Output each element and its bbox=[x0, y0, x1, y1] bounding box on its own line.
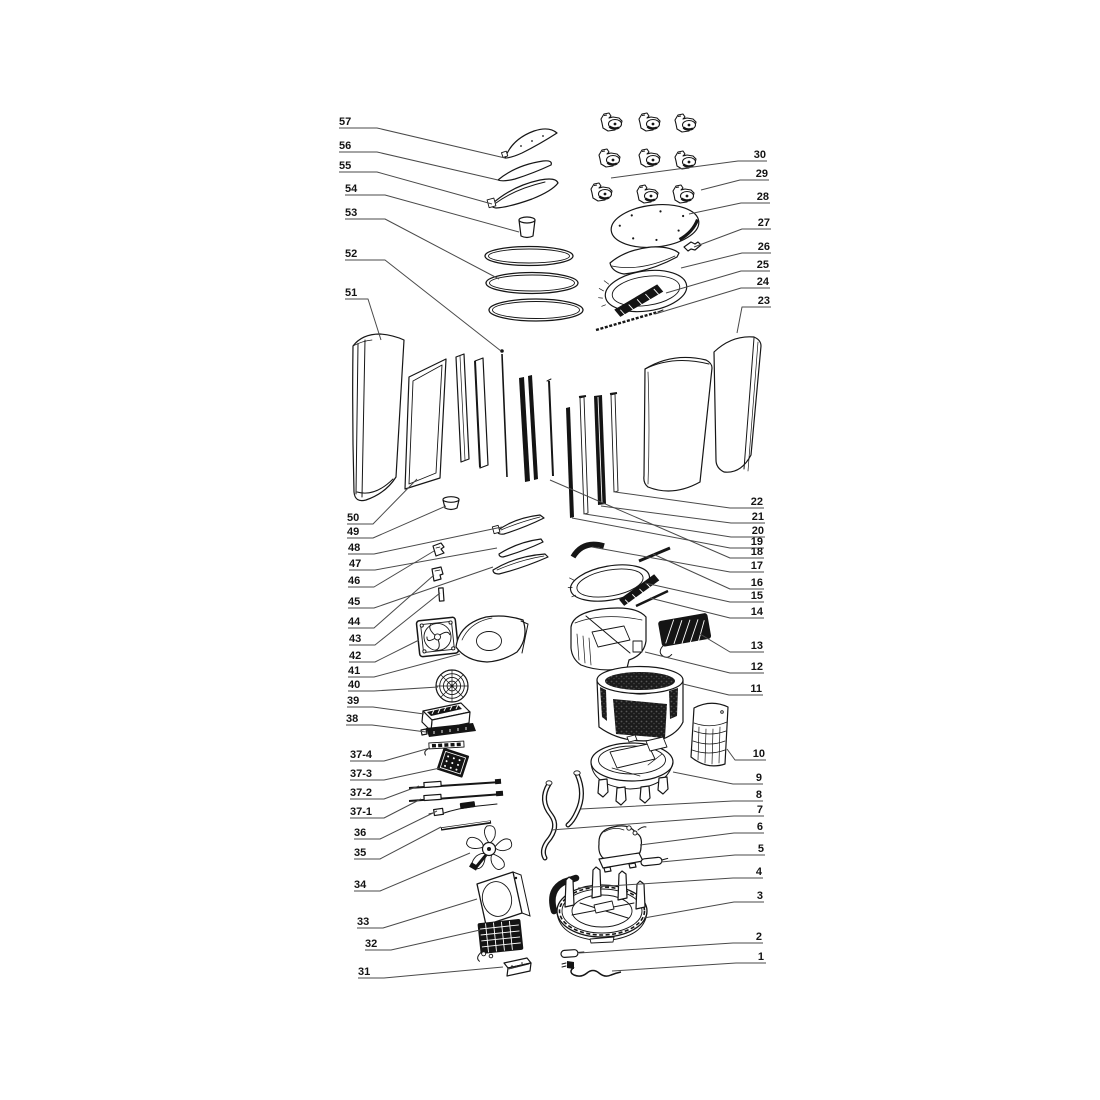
callout-label-42: 42 bbox=[349, 650, 361, 662]
callout-label-43: 43 bbox=[349, 633, 361, 645]
part-filter-grid bbox=[691, 703, 728, 766]
part-axial-fan bbox=[416, 617, 459, 657]
callout-label-37-4: 37-4 bbox=[350, 749, 373, 761]
callout-label-56: 56 bbox=[339, 140, 351, 152]
callout-label-49: 49 bbox=[347, 526, 359, 538]
part-caster-set bbox=[591, 113, 696, 203]
callout-label-11: 11 bbox=[750, 683, 762, 695]
callout-label-37-2: 37-2 bbox=[350, 787, 372, 799]
callout-label-54: 54 bbox=[345, 183, 358, 195]
callout-label-18: 18 bbox=[751, 546, 763, 558]
part-front-frame bbox=[405, 359, 446, 489]
exploded-parts-diagram: 5756555453525150494847464544434241403938… bbox=[0, 0, 1100, 1100]
callout-label-38: 38 bbox=[346, 713, 358, 725]
callout-label-48: 48 bbox=[348, 542, 360, 554]
callout-label-3: 3 bbox=[757, 890, 763, 902]
callout-label-10: 10 bbox=[753, 748, 765, 760]
callout-label-22: 22 bbox=[751, 496, 763, 508]
callout-label-28: 28 bbox=[757, 191, 769, 203]
callout-label-2: 2 bbox=[756, 931, 762, 943]
part-round-cap bbox=[443, 497, 459, 510]
callout-label-8: 8 bbox=[756, 789, 762, 801]
part-round-grille bbox=[436, 670, 468, 702]
callout-label-46: 46 bbox=[348, 575, 360, 587]
callout-label-1: 1 bbox=[758, 951, 764, 963]
part-cap-cup bbox=[519, 217, 535, 238]
callout-label-57: 57 bbox=[339, 116, 351, 128]
callout-label-53: 53 bbox=[345, 207, 357, 219]
callout-label-40: 40 bbox=[348, 679, 360, 691]
callout-label-21: 21 bbox=[752, 511, 764, 523]
callout-label-14: 14 bbox=[751, 606, 764, 618]
callout-label-34: 34 bbox=[354, 879, 367, 891]
callout-label-37-1: 37-1 bbox=[350, 806, 372, 818]
callout-label-29: 29 bbox=[756, 168, 768, 180]
callout-label-17: 17 bbox=[751, 560, 763, 572]
callout-label-16: 16 bbox=[751, 577, 763, 589]
callout-label-55: 55 bbox=[339, 160, 351, 172]
callout-label-12: 12 bbox=[751, 661, 763, 673]
callout-label-35: 35 bbox=[354, 847, 366, 859]
callout-label-13: 13 bbox=[751, 640, 763, 652]
callout-label-41: 41 bbox=[348, 665, 360, 677]
callout-label-15: 15 bbox=[751, 590, 763, 602]
callout-label-9: 9 bbox=[756, 772, 762, 784]
callout-label-7: 7 bbox=[757, 804, 763, 816]
callout-label-30: 30 bbox=[754, 149, 766, 161]
callout-label-4: 4 bbox=[756, 866, 763, 878]
callout-label-31: 31 bbox=[358, 966, 370, 978]
callout-label-23: 23 bbox=[758, 295, 770, 307]
callout-label-51: 51 bbox=[345, 287, 357, 299]
callout-label-47: 47 bbox=[349, 558, 361, 570]
callout-label-45: 45 bbox=[348, 596, 360, 608]
callout-label-36: 36 bbox=[354, 827, 366, 839]
callout-label-32: 32 bbox=[365, 938, 377, 950]
callout-label-33: 33 bbox=[357, 916, 369, 928]
diagram-svg: 5756555453525150494847464544434241403938… bbox=[0, 0, 1100, 1100]
callout-label-27: 27 bbox=[758, 217, 770, 229]
callout-label-24: 24 bbox=[757, 276, 770, 288]
callout-label-26: 26 bbox=[758, 241, 770, 253]
callout-label-52: 52 bbox=[345, 248, 357, 260]
callout-label-37-3: 37-3 bbox=[350, 768, 372, 780]
callout-label-39: 39 bbox=[347, 695, 359, 707]
callout-label-25: 25 bbox=[757, 259, 769, 271]
part-side-panel-left bbox=[353, 334, 404, 501]
part-filter-drum bbox=[597, 667, 683, 741]
callout-label-50: 50 bbox=[347, 512, 359, 524]
callout-label-5: 5 bbox=[758, 843, 764, 855]
callout-label-6: 6 bbox=[757, 821, 763, 833]
callout-label-44: 44 bbox=[348, 616, 361, 628]
